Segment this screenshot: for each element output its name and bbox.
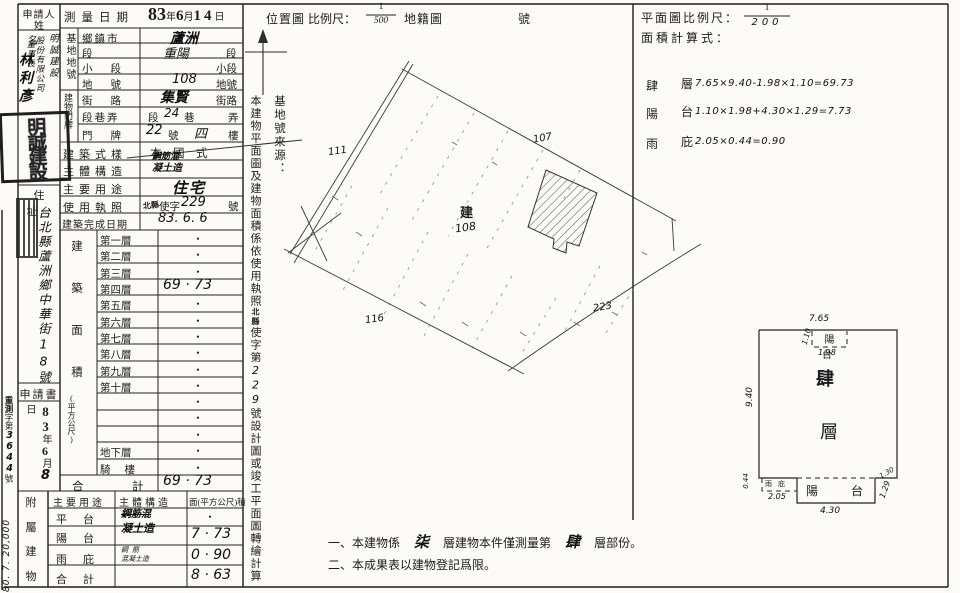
floor-label: 第三層	[100, 266, 132, 281]
floor4-area-value: 69 · 73	[163, 277, 212, 293]
plate-group-label: 建物門牌	[62, 93, 75, 139]
annex-row-area: •	[200, 512, 220, 522]
total-label-1: 合	[72, 478, 84, 494]
license-label: 使用執照	[63, 199, 127, 215]
calc-expression: 2.05×0.44=0.90	[695, 136, 786, 147]
adjacent-lot-111: 111	[327, 145, 347, 159]
floor-value: •	[188, 316, 208, 326]
application-header: 申請書	[19, 386, 59, 402]
file-suffix: 號	[4, 474, 14, 483]
structure-value-line1: 鋼筋混	[152, 151, 182, 163]
floor-value: •	[188, 332, 208, 342]
annex-row-use: 平台	[56, 511, 110, 527]
floor-value: •	[188, 430, 208, 440]
adjacent-lot-223: 223	[592, 300, 613, 314]
lane-label: 段巷弄	[82, 110, 120, 125]
street-label: 街路	[82, 93, 139, 108]
door-floor: 四	[194, 123, 207, 142]
group-char: 建	[26, 543, 37, 559]
annex-canopy-line2: 混凝土造	[121, 555, 149, 564]
location-map-title: 位置圖	[266, 10, 305, 27]
note1-mid: 層建物本件僅測量第	[443, 534, 551, 551]
location-scale-numerator: 1	[366, 2, 396, 12]
floor-plan-label-char2: 層	[820, 418, 838, 444]
annex-header-use: 主要用途	[53, 494, 105, 509]
note-segment: 使字第	[249, 327, 261, 365]
street-value: 集賢	[160, 87, 188, 107]
structure-value-line2: 凝土造	[152, 163, 182, 175]
site-plan-outline	[284, 61, 701, 374]
floor-label: 第六層	[100, 315, 132, 330]
annex-row-area: 8 · 63	[191, 567, 231, 583]
file-prefix: 字第	[4, 413, 14, 430]
resurvey-file-number: 重測字第3644號	[2, 396, 17, 494]
balcony-bottom-label-2: 台	[851, 482, 863, 499]
app-date-year: 83	[38, 404, 53, 434]
survey-month: 6	[176, 8, 184, 25]
calc-key1: 肆	[646, 77, 658, 94]
floor-label: 第八層	[100, 347, 132, 362]
applicant-company-1: 明誠建設	[45, 33, 59, 121]
dim-balcony-bottom-height: 1.29	[878, 480, 893, 500]
door-number: 22	[146, 123, 163, 138]
adjacent-lot-107: 107	[532, 131, 553, 145]
group-char: 物	[26, 568, 37, 584]
total-area-value: 69 · 73	[163, 473, 212, 489]
parcel-number: 108	[454, 220, 477, 236]
lot-suffix: 地號	[216, 77, 237, 92]
company-seal-text: 明誠建設	[19, 116, 51, 177]
annex-group-label: 附 屬 建 物	[24, 494, 38, 584]
floor-value: •	[188, 463, 208, 473]
note1-fill-floors: 柒	[414, 531, 429, 552]
annex-row-area: 7 · 73	[191, 526, 231, 542]
dim-balcony-bottom-width: 4.30	[820, 506, 840, 516]
note-segment: 本建物平面圖及建物面積係依使用執照	[249, 95, 261, 308]
lot-label: 地號	[82, 77, 139, 92]
section-label: 段	[82, 46, 115, 61]
floor-value: •	[188, 250, 208, 260]
license-suffix: 號	[228, 199, 239, 214]
note-line-1: 一、本建物係 柒 層建物本件僅測量第 肆 層部份。	[328, 531, 642, 552]
township-label: 鄉鎮市	[82, 31, 120, 46]
dim-balcony-top-height: 1.10	[800, 327, 813, 345]
annex-row-area: 0 · 90	[191, 547, 231, 563]
calc-key2: 庇	[681, 133, 693, 150]
group-char: 築	[71, 280, 83, 296]
annex-row-use: 雨庇	[56, 551, 110, 567]
annex-row-use: 陽台	[56, 530, 110, 546]
group-char: 積	[71, 364, 83, 380]
note1-pre: 一、本建物係	[328, 534, 400, 551]
note-line-2: 二、本成果表以建物登記爲限。	[328, 556, 496, 573]
building-mark: 建	[460, 202, 473, 221]
survey-day: 14	[194, 8, 215, 25]
annex-structure-line2: 凝土造	[121, 522, 154, 536]
survey-date-value: 83 年 6 月 14 日	[148, 4, 225, 25]
canopy-label: 雨庇	[765, 479, 791, 489]
floor-value: •	[188, 348, 208, 358]
style-label: 建築式樣	[63, 146, 127, 162]
site-source-label: 基地號來源：	[269, 95, 287, 235]
dim-left: 9.40	[745, 387, 755, 407]
print-run-code: 80. 7. 20,000	[2, 477, 12, 592]
subsection-label: 小段	[82, 61, 139, 76]
door-suffix: 樓	[228, 128, 239, 143]
calc-expression: 1.10×1.98+4.30×1.29=7.73	[695, 106, 852, 117]
survey-year: 83	[148, 4, 166, 25]
calc-key2: 台	[681, 103, 693, 120]
floor-label: 第十層	[100, 380, 132, 395]
survey-day-unit: 日	[215, 8, 225, 23]
floor-plan-label-char1: 肆	[816, 365, 834, 391]
structure-label: 主體構造	[63, 163, 127, 179]
file-stamp: 重測	[4, 396, 14, 413]
floor-value: •	[188, 299, 208, 309]
floor-value: •	[188, 234, 208, 244]
dim-step: 1.30	[878, 466, 896, 481]
lane-value: 24	[164, 106, 179, 120]
floor-label: 第五層	[100, 298, 132, 313]
survey-year-unit: 年	[166, 8, 176, 23]
total-label-2: 計	[132, 478, 144, 494]
annex-row-use: 合計	[56, 571, 110, 587]
note-license-number: 229	[249, 364, 262, 408]
floor-label: 第二層	[100, 249, 132, 264]
annex-structure-line1: 鋼筋混	[121, 508, 154, 522]
app-date-day-unit: 日	[24, 404, 35, 414]
area-source-note: 本建物平面圖及建物面積係依使用執照北縣使字第229號設計圖或竣工平面圖轉繪計算	[245, 95, 263, 583]
door-mid: 號	[168, 128, 179, 143]
area-calc-label: 面積計算式：	[641, 29, 731, 46]
balcony-bottom-label-1: 陽	[806, 482, 818, 499]
note1-post: 層部份。	[594, 534, 642, 551]
survey-date-label: 測量日期	[64, 9, 134, 25]
company-seal: 明誠建設	[0, 111, 71, 183]
note1-fill-floor-measured: 肆	[565, 531, 580, 552]
section-suffix: 段	[226, 46, 237, 61]
floor-label: 騎樓	[100, 462, 149, 477]
note-segment: 號設計圖或竣工平面圖轉繪計算	[249, 408, 261, 583]
floor-value: •	[188, 267, 208, 277]
applicant-address: 台北縣蘆洲鄉中華街18號	[34, 206, 53, 386]
floor-label: 地下層	[100, 445, 132, 460]
floor-label: 第九層	[100, 364, 132, 379]
app-date-month-unit: 月	[40, 458, 51, 468]
location-scale-label: 比例尺：	[308, 10, 356, 27]
dim-balcony-top-width: 1.98	[818, 348, 836, 357]
section-value: 重陽	[163, 43, 189, 62]
group-char: 附	[26, 494, 37, 510]
floor-value: •	[188, 365, 208, 375]
file-number: 3644	[4, 430, 15, 474]
survey-month-unit: 月	[184, 8, 194, 23]
floor-value: •	[188, 446, 208, 456]
map-sheet-number-suffix: 號	[518, 10, 530, 27]
use-label: 主要用途	[63, 181, 127, 197]
floor-label: 第一層	[100, 233, 132, 248]
group-char: 建	[71, 238, 83, 254]
plan-scale-denominator: 200	[744, 17, 790, 28]
license-stamp: 北縣	[142, 199, 159, 212]
street-suffix: 街路	[216, 93, 237, 108]
floor-label: 第七層	[100, 331, 132, 346]
cadastral-map-label: 地籍圖	[404, 10, 443, 27]
calc-key1: 雨	[646, 135, 658, 152]
annex-structure-span: 鋼筋混 凝土造	[121, 508, 154, 536]
floor-label: 第四層	[100, 282, 132, 297]
subsection-suffix: 小段	[216, 61, 237, 76]
dim-top: 7.65	[809, 314, 829, 324]
dim-canopy-height: 0.44	[742, 473, 750, 489]
floor-area-unit: (平方公尺)	[66, 394, 77, 472]
floor-value: •	[188, 413, 208, 423]
note-stamp: 北縣	[251, 308, 260, 327]
structure-value: 鋼筋混 凝土造	[152, 151, 182, 175]
plan-scale-numerator: 1	[744, 3, 790, 13]
lot-value: 108	[172, 72, 197, 87]
license-number: 229	[181, 195, 206, 210]
completion-label: 建築完成日期	[62, 216, 128, 231]
annex-header-area: 面(平方公尺)積	[189, 496, 246, 508]
completion-value: 83. 6. 6	[158, 211, 208, 226]
location-scale-denominator: 500	[366, 16, 396, 26]
app-date-month: 6	[38, 444, 52, 458]
calc-key2: 層	[681, 75, 693, 92]
adjacent-lot-116: 116	[364, 313, 384, 327]
app-date-day: 8	[38, 468, 53, 483]
lane-mid: 巷	[184, 110, 195, 125]
app-date-year-unit: 年	[40, 434, 51, 444]
group-char: 面	[71, 322, 83, 338]
application-date: 83年6月8日	[27, 404, 53, 488]
survey-result-sheet: 80. 7. 20,000 重測字第3644號 申請人 姓名 明誠建設 股份有限…	[0, 0, 960, 593]
floor-value: •	[188, 381, 208, 391]
floor-area-group-label: 建 築 面 積	[70, 238, 84, 380]
calc-key1: 陽	[646, 105, 658, 122]
plan-scale-label: 平面圖比例尺：	[641, 9, 739, 26]
group-char: 屬	[26, 519, 37, 535]
annex-structure-canopy: 鋼筋 混凝土造	[121, 546, 149, 564]
calc-expression: 7.65×9.40-1.98×1.10=69.73	[695, 78, 854, 89]
site-plan-building-hatch	[528, 170, 597, 253]
floor-value: •	[188, 397, 208, 407]
annex-header-structure: 主體構造	[119, 494, 171, 509]
dim-canopy-width: 2.05	[768, 492, 786, 501]
annex-canopy-line1: 鋼筋	[121, 546, 149, 555]
lane-suffix: 弄	[228, 110, 239, 125]
door-label: 門牌	[82, 128, 139, 143]
